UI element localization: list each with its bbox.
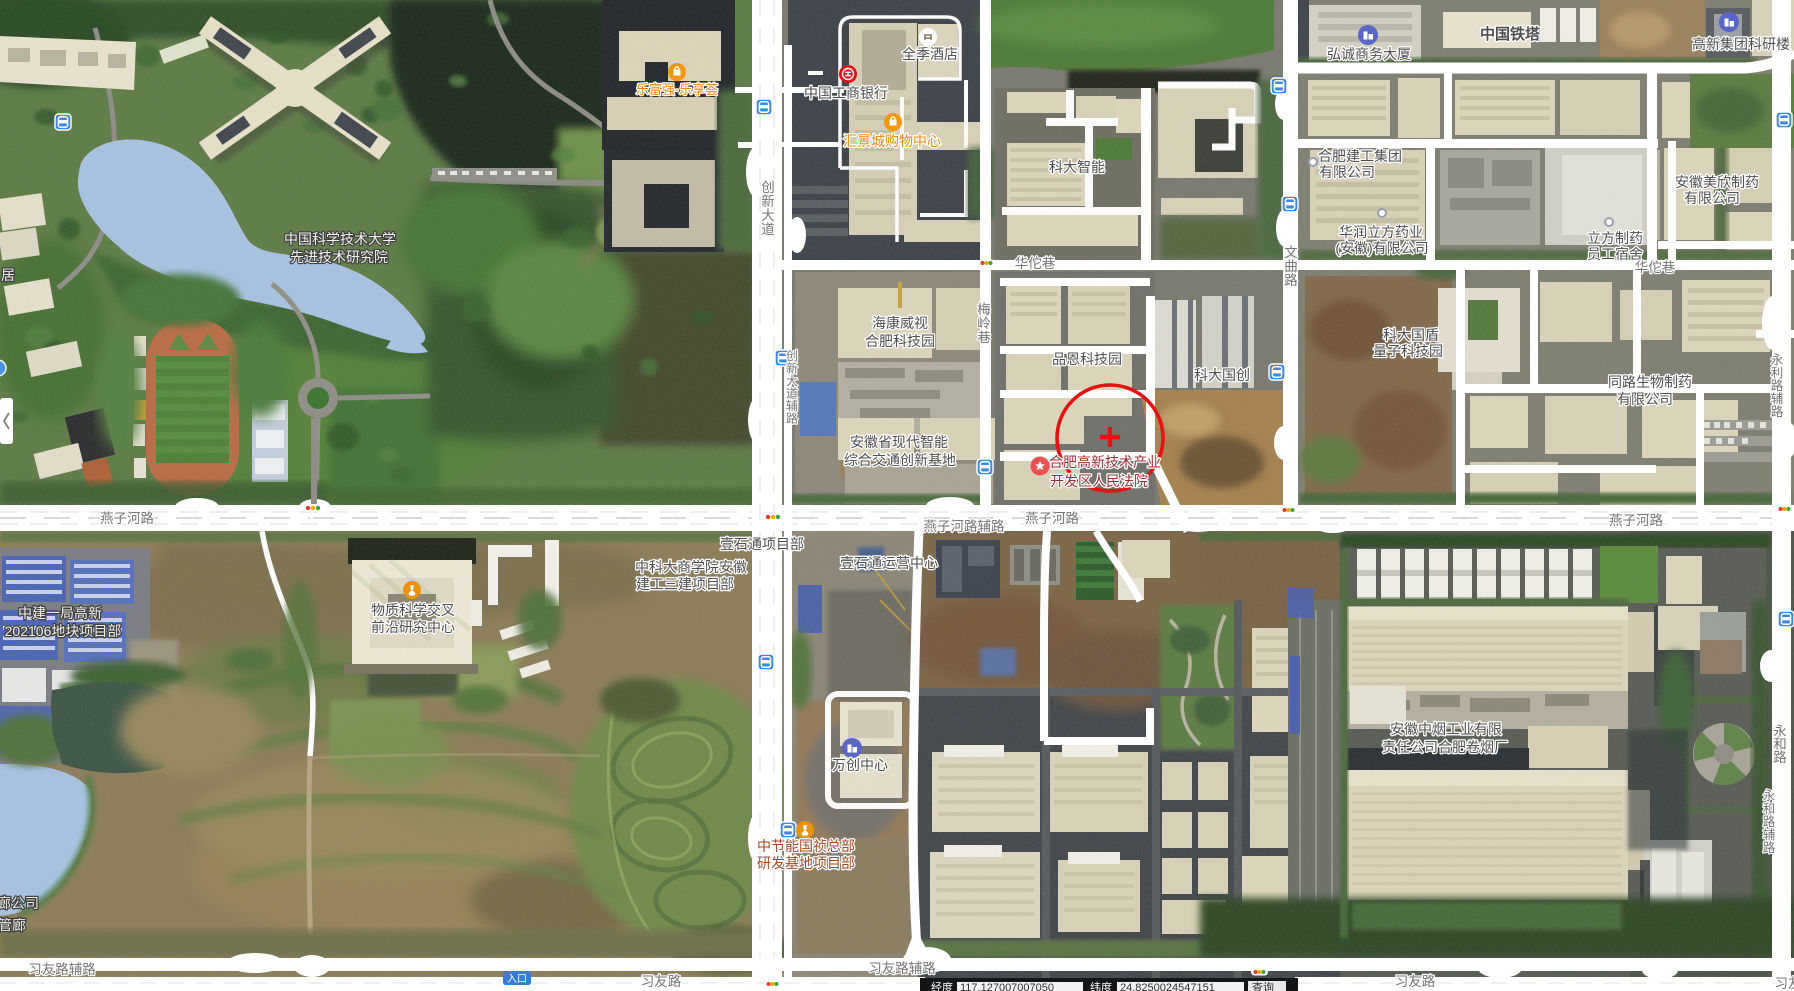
svg-text:燕子河路辅路: 燕子河路辅路 [924,519,1005,534]
svg-text:科大智能: 科大智能 [1049,159,1105,175]
svg-text:经度: 经度 [931,980,953,991]
svg-text:习友路辅路: 习友路辅路 [868,961,936,976]
svg-text:24.8250024547151: 24.8250024547151 [1120,982,1215,991]
svg-text:习友: 习友 [1775,976,1794,991]
svg-text:乐富强·乐享荟: 乐富强·乐享荟 [636,82,718,97]
svg-text:合肥建工集团: 合肥建工集团 [1318,148,1402,164]
svg-text:永利路辅路: 永利路辅路 [1771,353,1784,419]
svg-text:习友路辅路: 习友路辅路 [28,962,96,977]
svg-text:习友路: 习友路 [1395,974,1436,989]
svg-text:纬度: 纬度 [1090,980,1112,991]
svg-text:全季酒店: 全季酒店 [902,46,958,62]
svg-text:202106地块项目部: 202106地块项目部 [5,623,122,639]
svg-text:创新大道辅路: 创新大道辅路 [786,349,798,426]
svg-text:安徽中烟工业有限: 安徽中烟工业有限 [1390,721,1502,737]
svg-text:前沿研究中心: 前沿研究中心 [371,619,455,635]
svg-text:永和路: 永和路 [1773,724,1787,765]
svg-text:综合交通创新基地: 综合交通创新基地 [844,452,956,468]
svg-text:高新集团科研楼: 高新集团科研楼 [1692,36,1790,52]
svg-text:查询: 查询 [1252,980,1274,991]
svg-text:壹石通运营中心: 壹石通运营中心 [840,555,938,571]
svg-text:有限公司: 有限公司 [1617,391,1673,407]
svg-text:梅岭巷: 梅岭巷 [977,302,991,345]
svg-text:117.127007007050: 117.127007007050 [960,982,1054,991]
svg-text:廊公司: 廊公司 [0,895,39,911]
svg-text:先进技术研究院: 先进技术研究院 [290,249,388,265]
svg-text:创新大道: 创新大道 [761,180,775,237]
svg-text:安徽美欣制药: 安徽美欣制药 [1675,174,1759,190]
svg-text:中国科学技术大学: 中国科学技术大学 [284,231,396,247]
svg-text:管廊: 管廊 [0,917,26,933]
svg-text:责任公司合肥卷烟厂: 责任公司合肥卷烟厂 [1382,739,1508,755]
svg-text:汇景城购物中心: 汇景城购物中心 [843,133,941,149]
svg-text:万创中心: 万创中心 [832,757,888,773]
svg-text:弘诚商务大厦: 弘诚商务大厦 [1327,46,1411,62]
svg-text:燕子河路: 燕子河路 [1609,513,1663,528]
svg-text:建工三建项目部: 建工三建项目部 [636,576,734,592]
svg-text:有限公司: 有限公司 [1684,190,1740,206]
svg-text:文曲路: 文曲路 [1284,245,1298,288]
svg-text:中科大商学院安徽: 中科大商学院安徽 [635,559,747,575]
svg-text:品恩科技园: 品恩科技园 [1052,351,1122,367]
svg-text:燕子河路: 燕子河路 [100,511,154,526]
svg-text:有限公司: 有限公司 [1319,164,1375,180]
svg-text:华佗巷: 华佗巷 [1015,255,1056,271]
svg-text:中节能国祯总部: 中节能国祯总部 [757,838,855,854]
svg-text:同路生物制药: 同路生物制药 [1608,374,1692,390]
svg-text:(安徽)有限公司: (安徽)有限公司 [1335,240,1428,256]
svg-text:居: 居 [1,267,15,283]
svg-text:合肥科技园: 合肥科技园 [865,333,935,349]
svg-text:立方制药: 立方制药 [1587,230,1643,246]
svg-text:安徽省现代智能: 安徽省现代智能 [850,434,948,450]
svg-text:物质科学交叉: 物质科学交叉 [371,602,455,618]
svg-text:壹石通项目部: 壹石通项目部 [720,536,804,552]
svg-text:华润立方药业: 华润立方药业 [1339,224,1423,240]
svg-text:科大国盾: 科大国盾 [1383,327,1439,343]
svg-text:燕子河路: 燕子河路 [1025,511,1079,526]
svg-text:华佗巷: 华佗巷 [1635,259,1676,275]
svg-text:中建一局高新: 中建一局高新 [18,605,102,621]
svg-text:永和路辅路: 永和路辅路 [1763,789,1776,855]
svg-text:中国铁塔: 中国铁塔 [1480,25,1541,43]
svg-text:中国工商银行: 中国工商银行 [804,85,888,101]
svg-text:合肥高新技术产业: 合肥高新技术产业 [1049,454,1161,470]
svg-text:入口: 入口 [507,974,527,985]
svg-text:习友路: 习友路 [641,974,682,989]
svg-text:海康威视: 海康威视 [872,315,928,331]
svg-text:研发基地项目部: 研发基地项目部 [757,855,855,871]
svg-text:量子科技园: 量子科技园 [1373,343,1443,359]
svg-text:科大国创: 科大国创 [1194,367,1250,383]
svg-text:开发区人民法院: 开发区人民法院 [1050,473,1148,489]
